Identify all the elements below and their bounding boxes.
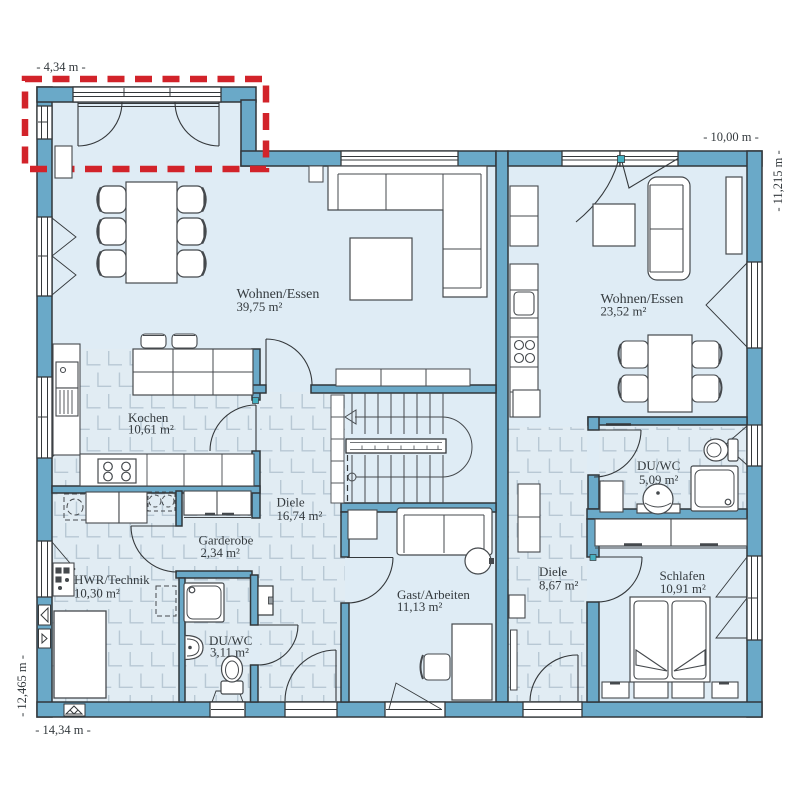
svg-text:- 10,00 m -: - 10,00 m - xyxy=(703,130,759,144)
svg-text:- 12,465 m -: - 12,465 m - xyxy=(15,655,29,717)
svg-text:10,61 m²: 10,61 m² xyxy=(128,423,174,437)
svg-text:HWR/Technik: HWR/Technik xyxy=(74,572,150,587)
svg-text:16,74 m²: 16,74 m² xyxy=(277,509,323,523)
svg-text:3,11 m²: 3,11 m² xyxy=(210,646,249,660)
svg-text:- 4,34 m -: - 4,34 m - xyxy=(36,60,85,74)
svg-text:23,52 m²: 23,52 m² xyxy=(601,305,647,319)
svg-text:8,67 m²: 8,67 m² xyxy=(539,579,579,593)
svg-text:Schlafen: Schlafen xyxy=(660,568,706,583)
svg-text:Diele: Diele xyxy=(277,495,305,510)
svg-text:5,09 m²: 5,09 m² xyxy=(639,473,679,487)
svg-text:11,13 m²: 11,13 m² xyxy=(397,600,442,614)
svg-text:- 11,215 m -: - 11,215 m - xyxy=(771,150,785,211)
svg-text:10,30 m²: 10,30 m² xyxy=(74,587,120,601)
svg-text:39,75 m²: 39,75 m² xyxy=(237,300,283,314)
svg-text:Diele: Diele xyxy=(539,564,567,579)
svg-text:2,34 m²: 2,34 m² xyxy=(201,546,241,560)
svg-text:10,91 m²: 10,91 m² xyxy=(660,582,706,596)
svg-text:- 14,34 m -: - 14,34 m - xyxy=(35,723,91,737)
svg-text:DU/WC: DU/WC xyxy=(637,458,680,473)
